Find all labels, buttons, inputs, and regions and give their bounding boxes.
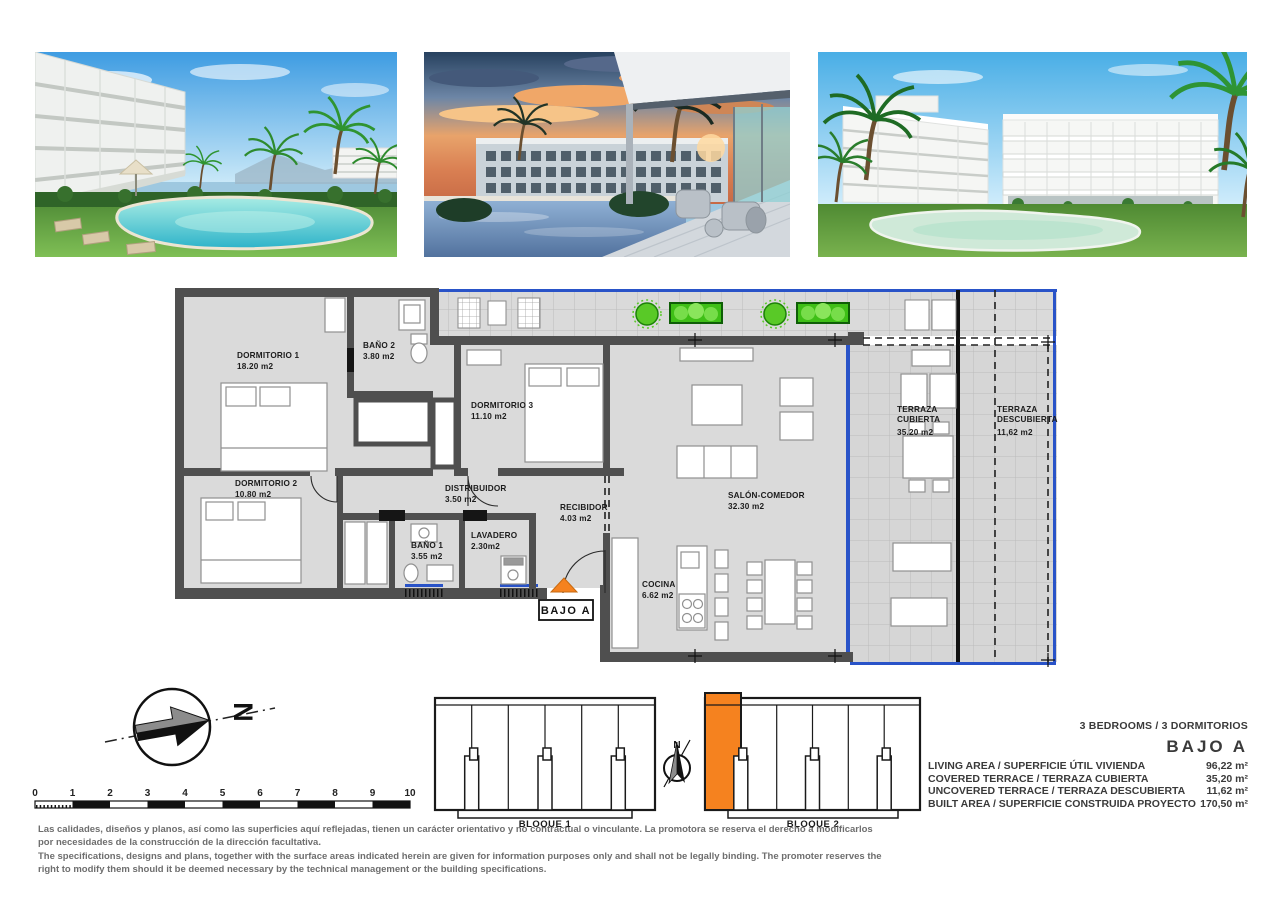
render-building-day xyxy=(818,52,1247,257)
disclaimer-en: The specifications, designs and plans, t… xyxy=(38,851,882,876)
sideboard xyxy=(680,348,753,361)
room-label: COCINA xyxy=(642,580,676,589)
kitchen-counter xyxy=(612,538,638,648)
terrace-lounger xyxy=(893,543,951,571)
svg-text:7: 7 xyxy=(295,788,301,799)
unit-summary: 3 BEDROOMS / 3 DORMITORIOS BAJO A LIVING… xyxy=(928,720,1248,810)
room-area: 3.55 m2 xyxy=(411,552,443,561)
room-area: 32.30 m2 xyxy=(728,502,764,511)
svg-text:8: 8 xyxy=(332,788,338,799)
wardrobe-dorm1 xyxy=(325,298,345,332)
room-label: SALÓN-COMEDOR xyxy=(728,489,805,500)
svg-text:0: 0 xyxy=(32,788,38,799)
block-key-plans: BLOQUE 1 N xyxy=(430,688,930,828)
bloque-1-plan: BLOQUE 1 xyxy=(435,698,655,828)
svg-text:1: 1 xyxy=(70,788,76,799)
svg-text:9: 9 xyxy=(370,788,376,799)
render-pool-garden-photo xyxy=(35,52,397,257)
area-row-label: UNCOVERED TERRACE / TERRAZA DESCUBIERTA xyxy=(928,785,1185,798)
area-row-label: BUILT AREA / SUPERFICIE CONSTRUIDA PROYE… xyxy=(928,798,1196,811)
unit-tag-label: BAJO A xyxy=(541,605,591,617)
render-pool-garden xyxy=(35,52,397,257)
brochure-page: BAJO A DORMITORIO 1 18.20 m2 BAÑO 2 3.80… xyxy=(0,0,1280,899)
room-area: 10.80 m2 xyxy=(235,490,271,499)
svg-text:CUBIERTA: CUBIERTA xyxy=(897,415,940,424)
room-label: BAÑO 2 xyxy=(363,340,395,350)
floor-plan: BAJO A DORMITORIO 1 18.20 m2 BAÑO 2 3.80… xyxy=(175,288,1065,678)
svg-text:2: 2 xyxy=(107,788,113,799)
area-row-label: COVERED TERRACE / TERRAZA CUBIERTA xyxy=(928,773,1149,786)
block-key-drawing: BLOQUE 1 N xyxy=(430,688,930,828)
sofa xyxy=(677,446,757,478)
legal-disclaimer: Las calidades, diseños y planos, así com… xyxy=(38,824,882,878)
room-label: DISTRIBUIDOR xyxy=(445,484,507,493)
room-label: LAVADERO xyxy=(471,531,518,540)
svg-text:DESCUBIERTA: DESCUBIERTA xyxy=(997,415,1058,424)
render-terrace-dusk xyxy=(424,52,790,257)
svg-text:4: 4 xyxy=(182,788,188,799)
area-row-value: 11,62 m² xyxy=(1207,785,1248,798)
closet xyxy=(345,522,365,584)
room-label: DORMITORIO 2 xyxy=(235,479,298,488)
area-row: BUILT AREA / SUPERFICIE CONSTRUIDA PROYE… xyxy=(928,798,1248,811)
room-area: 11.10 m2 xyxy=(471,412,507,421)
area-row-value: 35,20 m² xyxy=(1206,773,1248,786)
svg-text:10: 10 xyxy=(404,788,416,799)
room-label: TERRAZA xyxy=(997,405,1038,414)
disclaimer-es: Las calidades, diseños y planos, así com… xyxy=(38,824,882,849)
terrace-lounger xyxy=(901,374,927,408)
room-area: 2.30m2 xyxy=(471,542,500,551)
room-area: 3.50 m2 xyxy=(445,495,477,504)
north-label: N xyxy=(228,702,258,722)
room-area: 11,62 m2 xyxy=(997,428,1033,437)
svg-text:5: 5 xyxy=(220,788,226,799)
area-table: LIVING AREA / SUPERFICIE ÚTIL VIVIENDA 9… xyxy=(928,760,1248,810)
svg-text:3: 3 xyxy=(145,788,151,799)
area-row-value: 96,22 m² xyxy=(1206,760,1248,773)
floor-plan-drawing: BAJO A DORMITORIO 1 18.20 m2 BAÑO 2 3.80… xyxy=(175,288,1065,678)
armchair xyxy=(780,378,813,406)
area-row: UNCOVERED TERRACE / TERRAZA DESCUBIERTA … xyxy=(928,785,1248,798)
area-row: COVERED TERRACE / TERRAZA CUBIERTA 35,20… xyxy=(928,773,1248,786)
dining-table xyxy=(765,560,795,624)
north-compass-icon: N xyxy=(105,689,275,765)
room-label: DORMITORIO 3 xyxy=(471,401,534,410)
bloque-2-plan: BLOQUE 2 xyxy=(705,693,920,828)
room-area: 3.80 m2 xyxy=(363,352,395,361)
room-area: 18.20 m2 xyxy=(237,362,273,371)
scale-bar: 0 1 2 3 4 5 6 7 8 9 10 xyxy=(32,788,416,808)
bedrooms-heading: 3 BEDROOMS / 3 DORMITORIOS xyxy=(928,720,1248,732)
room-label: DORMITORIO 1 xyxy=(237,351,300,360)
compass-and-scale: N 0 1 2 3 4 5 6 7 8 9 10 xyxy=(20,680,440,820)
area-row-label: LIVING AREA / SUPERFICIE ÚTIL VIVIENDA xyxy=(928,760,1145,773)
compass-scale-drawing: N 0 1 2 3 4 5 6 7 8 9 10 xyxy=(20,680,440,820)
building-right xyxy=(1003,114,1218,208)
room-label: RECIBIDOR xyxy=(560,503,608,512)
svg-text:6: 6 xyxy=(257,788,263,799)
room-area: 4.03 m2 xyxy=(560,514,592,523)
unit-tag: BAJO A xyxy=(539,600,593,620)
room-area: 35.20 m2 xyxy=(897,428,933,437)
render-building-day-photo xyxy=(818,52,1247,257)
render-terrace-dusk-photo xyxy=(424,52,790,257)
unit-name: BAJO A xyxy=(928,737,1248,757)
room-label: TERRAZA xyxy=(897,405,938,414)
room-label: BAÑO 1 xyxy=(411,540,443,550)
room-area: 6.62 m2 xyxy=(642,591,674,600)
area-row: LIVING AREA / SUPERFICIE ÚTIL VIVIENDA 9… xyxy=(928,760,1248,773)
terrace-table xyxy=(903,436,953,478)
coffee-table xyxy=(692,385,742,425)
mini-north-compass-icon: N xyxy=(664,740,690,787)
bush xyxy=(764,303,786,325)
bush xyxy=(636,303,658,325)
dresser-dorm3 xyxy=(467,350,501,365)
area-row-value: 170,50 m² xyxy=(1200,798,1248,811)
